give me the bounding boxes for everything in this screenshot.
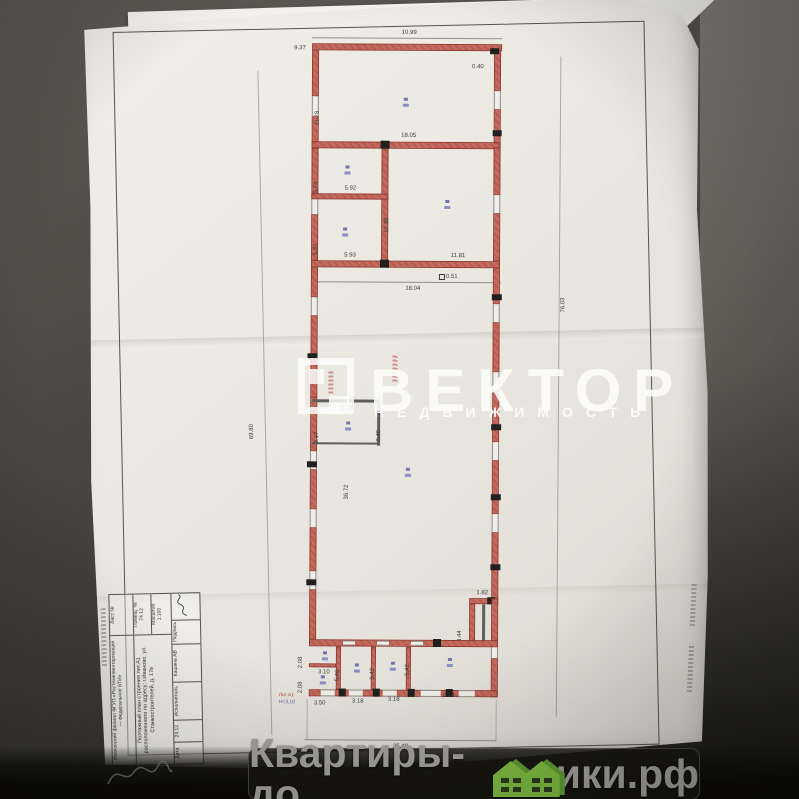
door-opening bbox=[343, 640, 355, 645]
footer-watermark: Квартиры-доики.рф bbox=[248, 748, 700, 799]
dim-room2-upper-left: 3.74 bbox=[313, 182, 319, 194]
wall bbox=[311, 267, 318, 297]
wall-pier-mark bbox=[492, 294, 502, 300]
height-note: Н=3,10 bbox=[279, 700, 295, 705]
room-number-marker bbox=[341, 227, 350, 236]
wall-pier-mark bbox=[373, 689, 380, 697]
dim-notch-width: 1.82 bbox=[463, 590, 501, 596]
wall-pier-mark bbox=[408, 689, 415, 697]
dim-room7-height: 5.42 bbox=[405, 664, 411, 676]
window-symbol bbox=[311, 297, 318, 315]
dim-mid-bottom-total: 18.04 bbox=[363, 286, 463, 293]
window-symbol bbox=[349, 690, 363, 697]
wall bbox=[312, 43, 502, 51]
room-number-marker bbox=[319, 675, 328, 684]
dim-closet-left: 2.17 bbox=[314, 432, 320, 444]
dim-bottom-room2: 3.18 bbox=[345, 698, 371, 704]
footer-watermark-prefix: Квартиры-до bbox=[249, 733, 494, 799]
vector-logo-icon bbox=[298, 358, 354, 414]
dim-core-height: 12.38 bbox=[384, 218, 390, 233]
wall bbox=[492, 460, 499, 514]
dim-room3-left: 5.37 bbox=[313, 244, 319, 256]
title-block: Ивановский филиал ФГУП «Ростехинвентариз… bbox=[108, 592, 204, 766]
wall bbox=[309, 589, 316, 639]
room-number-marker bbox=[446, 658, 455, 667]
dim-room5-height: 5.46 bbox=[335, 670, 341, 682]
wall bbox=[310, 469, 317, 509]
wall bbox=[311, 260, 500, 268]
title-block-signature-label: Подпись bbox=[172, 619, 200, 644]
dim-mid-bottom-jog: 0.51 bbox=[446, 274, 458, 280]
window-symbol bbox=[492, 442, 499, 460]
title-block-signature bbox=[171, 593, 200, 620]
window-symbol bbox=[493, 304, 500, 322]
green-house-icon bbox=[524, 759, 557, 797]
window-symbol bbox=[493, 195, 500, 213]
dim-closet-right: 2.40 bbox=[376, 430, 382, 442]
dim-hall-length: 36.72 bbox=[344, 484, 350, 499]
dim-top-width: 10.99 bbox=[369, 30, 449, 36]
wall-pier-mark bbox=[307, 461, 317, 467]
wall bbox=[493, 147, 500, 195]
partition-wall bbox=[482, 604, 485, 642]
handwritten-signature bbox=[104, 756, 174, 797]
room-number-marker bbox=[443, 200, 452, 209]
wall-pier-mark bbox=[339, 688, 346, 696]
dim-room6-height: 5.42 bbox=[370, 668, 376, 680]
dim-room2-width: 5.92 bbox=[325, 185, 375, 191]
dim-room3-width: 5.93 bbox=[325, 252, 375, 258]
wall bbox=[491, 598, 498, 642]
background-right-surface bbox=[700, 0, 799, 799]
wall bbox=[494, 51, 501, 91]
title-block-scale-value: 1:100 bbox=[156, 608, 162, 621]
photograph-of-floor-plan: 69.80 76.03 10.99 9.37 0.40 11.78 18.05 bbox=[0, 0, 799, 799]
wall bbox=[309, 527, 316, 571]
door-opening bbox=[377, 641, 389, 646]
wall bbox=[469, 604, 475, 642]
wall bbox=[336, 646, 341, 689]
dim-bottom-left-width: 3.50 bbox=[307, 700, 333, 706]
wall bbox=[381, 149, 389, 261]
title-block-date-value: 24.12 bbox=[174, 719, 202, 742]
window-symbol bbox=[321, 689, 335, 696]
closet-wall bbox=[312, 442, 380, 444]
wall-pier-mark bbox=[306, 579, 316, 585]
title-block-sheet-label: Лист № bbox=[109, 595, 133, 635]
room-number-marker bbox=[402, 98, 411, 107]
wall-pier-mark bbox=[490, 564, 500, 570]
wall-pier-mark bbox=[380, 260, 389, 268]
dim-cell-height-b: 2.08 bbox=[298, 682, 304, 694]
wall-pier-mark bbox=[490, 48, 499, 54]
dimension-line bbox=[311, 281, 501, 283]
window-symbol bbox=[383, 690, 397, 697]
wall bbox=[311, 193, 388, 199]
title-block-document: Поэтажный план строения лит.А1 расположе… bbox=[134, 634, 174, 765]
wall-pier-mark bbox=[491, 424, 501, 430]
room-number-marker bbox=[344, 421, 353, 430]
window-symbol bbox=[310, 509, 317, 527]
green-house-icon bbox=[493, 759, 526, 797]
liter-note: Лит.А1 bbox=[279, 693, 294, 698]
window-symbol bbox=[494, 91, 501, 109]
dim-offset-top-left: 9.37 bbox=[294, 45, 306, 51]
room-number-marker bbox=[343, 165, 352, 174]
dim-room1-left: 11.78 bbox=[315, 111, 321, 126]
wall bbox=[309, 663, 336, 667]
wall bbox=[312, 141, 501, 149]
wall-pier-mark bbox=[433, 639, 441, 647]
wall bbox=[312, 50, 319, 96]
window-symbol bbox=[492, 514, 499, 532]
dim-cell-height-a: 2.08 bbox=[298, 657, 304, 669]
room-number-marker bbox=[389, 662, 398, 671]
title-block-executor-value: Кашина АВ bbox=[172, 643, 201, 682]
dim-right-overall: 76.03 bbox=[560, 297, 566, 312]
window-symbol bbox=[311, 198, 318, 214]
dim-bottom-room3: 3.18 bbox=[381, 697, 407, 703]
dim-mid-wall: 18.05 bbox=[354, 133, 464, 140]
watermark-subtitle: НЕДВИЖИМОСТЬ bbox=[374, 404, 653, 420]
wall-pier-mark bbox=[493, 130, 502, 136]
dim-jog-top-right: 0.40 bbox=[472, 64, 484, 70]
room-number-marker bbox=[404, 468, 413, 477]
jog-symbol bbox=[439, 274, 445, 280]
room-number-marker bbox=[321, 651, 330, 660]
dim-mid-bottom-right: 11.81 bbox=[423, 253, 493, 259]
dim-bottom-room4: 6.14 bbox=[429, 693, 469, 699]
footer-watermark-suffix: ики.рф bbox=[556, 754, 699, 795]
wall-pier-mark bbox=[381, 141, 390, 149]
title-block-room-value: 74.12 bbox=[138, 608, 144, 621]
wall-pier-mark bbox=[491, 494, 501, 500]
extension-line bbox=[495, 700, 496, 740]
door-opening bbox=[411, 641, 423, 646]
wall bbox=[493, 213, 500, 261]
title-block-executor-label: Исполнитель bbox=[173, 681, 202, 720]
dim-left-overall: 69.80 bbox=[249, 424, 255, 439]
room-number-marker bbox=[353, 664, 362, 673]
